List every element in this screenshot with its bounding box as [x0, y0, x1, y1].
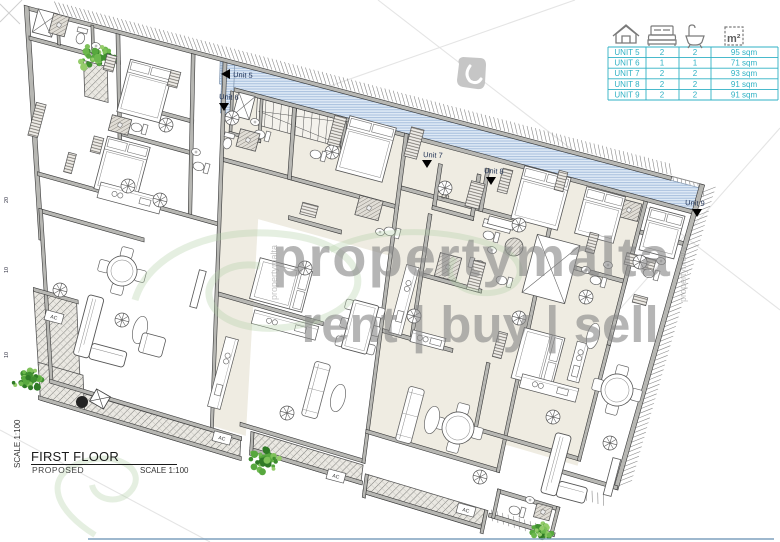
svg-text:2: 2 — [693, 48, 698, 57]
svg-text:PROPOSED: PROPOSED — [32, 465, 84, 475]
svg-text:UNIT 6: UNIT 6 — [614, 59, 640, 68]
svg-text:UNIT 8: UNIT 8 — [614, 80, 640, 89]
svg-text:Unit 8: Unit 8 — [484, 166, 504, 176]
svg-text:SCALE 1:100: SCALE 1:100 — [140, 466, 189, 475]
svg-text:91 sqm: 91 sqm — [731, 90, 758, 99]
svg-text:1: 1 — [693, 59, 698, 68]
svg-text:2: 2 — [693, 80, 698, 89]
svg-text:Unit 7: Unit 7 — [423, 150, 443, 160]
svg-text:Unit 5: Unit 5 — [233, 70, 253, 80]
svg-text:2: 2 — [660, 90, 665, 99]
svg-text:93 sqm: 93 sqm — [731, 69, 758, 78]
svg-text:2: 2 — [660, 48, 665, 57]
svg-text:71 sqm: 71 sqm — [731, 59, 758, 68]
svg-text:2: 2 — [693, 90, 698, 99]
svg-text:UNIT 7: UNIT 7 — [614, 69, 640, 78]
svg-text:UNIT 9: UNIT 9 — [614, 90, 640, 99]
svg-text:Lift: Lift — [441, 194, 450, 201]
svg-text:20: 20 — [4, 197, 10, 203]
svg-text:10: 10 — [4, 267, 10, 273]
svg-text:91 sqm: 91 sqm — [731, 80, 758, 89]
svg-text:2: 2 — [660, 80, 665, 89]
svg-text:2: 2 — [693, 69, 698, 78]
svg-text:FIRST FLOOR: FIRST FLOOR — [31, 449, 119, 464]
svg-text:propertymalta: propertymalta — [678, 247, 688, 302]
svg-text:1: 1 — [660, 59, 665, 68]
svg-text:95 sqm: 95 sqm — [731, 48, 758, 57]
svg-text:propertymalta: propertymalta — [269, 245, 279, 300]
svg-text:UNIT 5: UNIT 5 — [614, 48, 640, 57]
svg-text:SCALE 1:100: SCALE 1:100 — [13, 419, 22, 468]
svg-text:Unit 9: Unit 9 — [685, 198, 705, 208]
svg-text:m²: m² — [727, 33, 741, 45]
svg-text:Unit 6: Unit 6 — [219, 92, 239, 102]
svg-text:2: 2 — [660, 69, 665, 78]
svg-text:10: 10 — [4, 352, 10, 358]
svg-text:rent | buy | sell: rent | buy | sell — [301, 296, 658, 354]
svg-text:propertymalta: propertymalta — [272, 225, 671, 288]
